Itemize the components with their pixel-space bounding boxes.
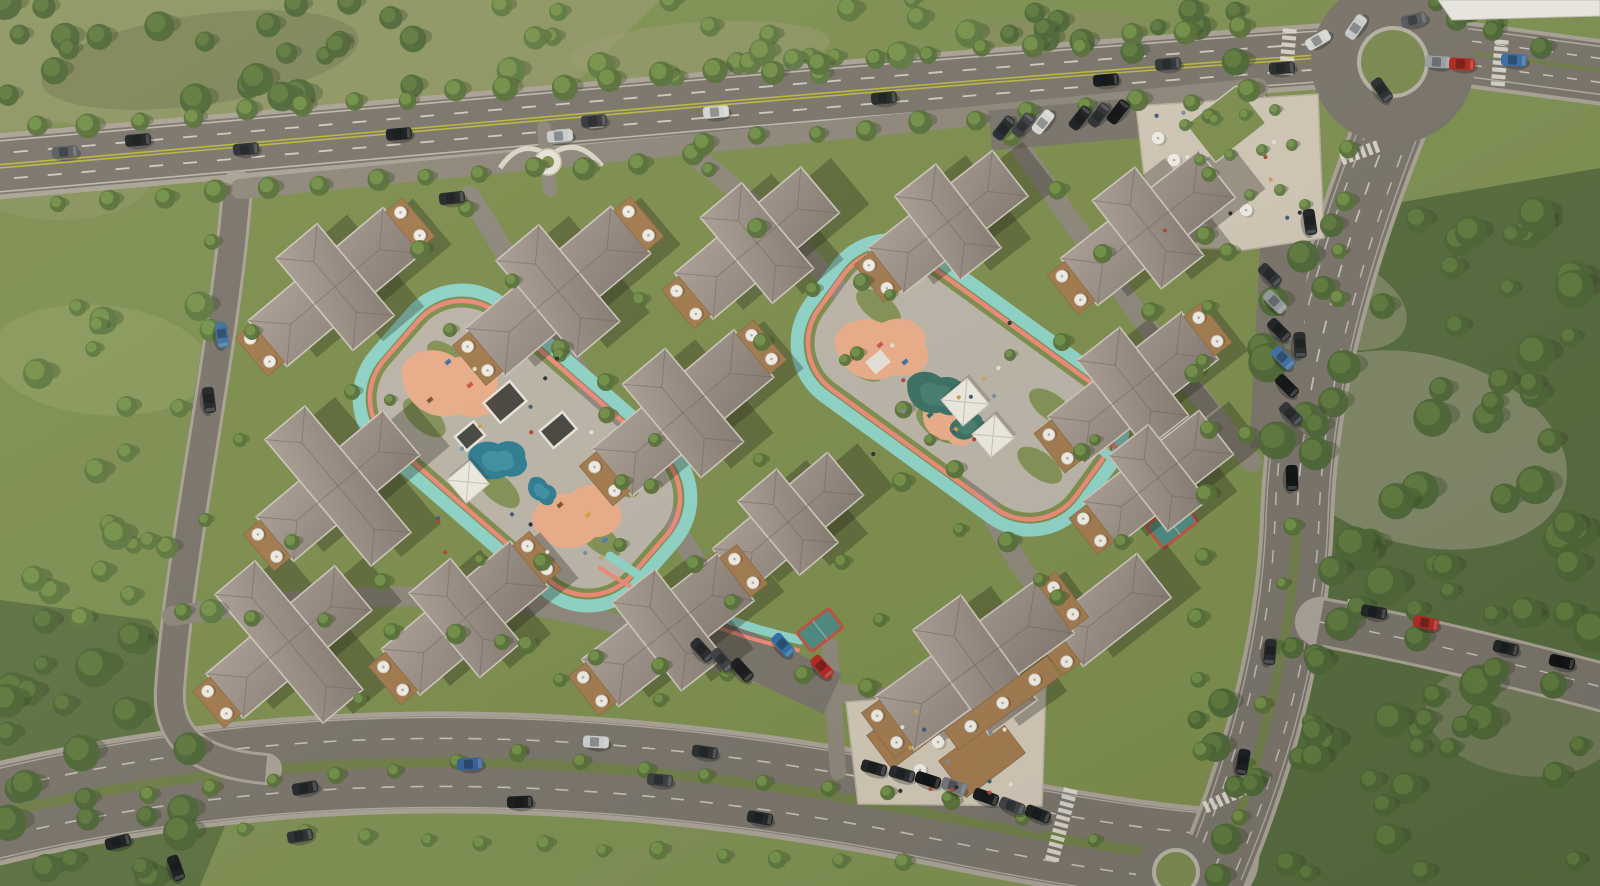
aerial-svg	[0, 0, 1600, 886]
screenshot-stage	[0, 0, 1600, 886]
overlay	[0, 0, 1600, 886]
